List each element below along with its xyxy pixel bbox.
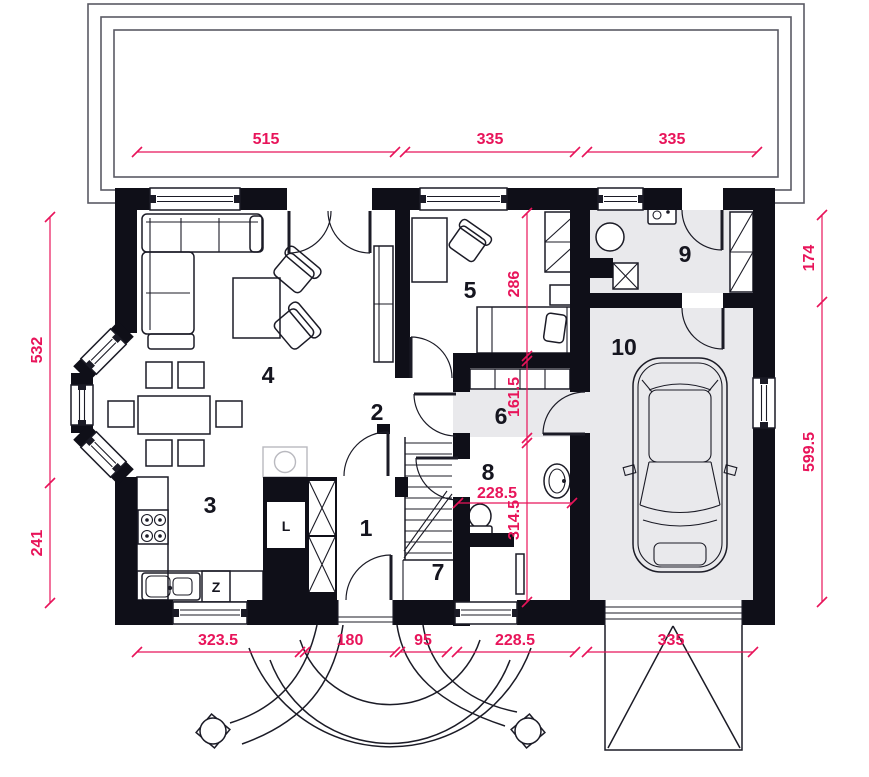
room-label-10: 10 <box>611 334 637 360</box>
window-kitchen <box>173 602 247 624</box>
room-label-3: 3 <box>204 492 217 518</box>
garage-door <box>605 600 742 625</box>
window-living <box>150 188 240 210</box>
entrance-column-left <box>196 714 230 748</box>
room-label-7: 7 <box>432 559 445 585</box>
dim-top-1: 515 <box>253 131 280 148</box>
window-room5 <box>420 188 507 210</box>
dim-int-h: 228.5 <box>477 485 517 502</box>
boiler-icon <box>596 223 624 251</box>
dim-left-1: 532 <box>29 337 46 364</box>
dishwasher-label: Z <box>212 579 221 595</box>
washing-machine-icon <box>263 447 307 477</box>
room-label-9: 9 <box>679 241 692 267</box>
toilet-icon <box>468 504 492 536</box>
dim-left-2: 241 <box>29 530 46 557</box>
utility-closet <box>730 212 753 292</box>
terrace <box>88 4 804 203</box>
window-utility <box>598 188 643 210</box>
entrance-steps <box>196 625 545 748</box>
window-bay-middle <box>71 385 93 425</box>
dim-bottom-5: 335 <box>658 632 685 649</box>
window-bathroom <box>455 602 517 624</box>
stove-icon <box>138 510 168 544</box>
vent-shaft-icon <box>613 263 638 289</box>
dim-bottom-3: 95 <box>414 632 432 649</box>
dim-int-1: 286 <box>506 271 523 298</box>
dim-bottom-4: 228.5 <box>495 632 535 649</box>
room-label-5: 5 <box>464 277 477 303</box>
entrance-column-right <box>511 714 545 748</box>
room-label-2: 2 <box>371 399 384 425</box>
dim-bottom-2: 180 <box>337 632 364 649</box>
dim-int-2: 161.5 <box>506 377 523 417</box>
room-label-4: 4 <box>262 362 275 388</box>
dim-int-3: 314.5 <box>506 500 523 540</box>
wall-4-5 <box>395 210 410 378</box>
dim-top-2: 335 <box>477 131 504 148</box>
dim-bottom-1: 323.5 <box>198 632 238 649</box>
window-garage <box>753 378 775 428</box>
dim-right-1: 174 <box>801 245 818 272</box>
dim-right-2: 599.5 <box>801 432 818 472</box>
floor-plan: L Z 1 2 3 4 5 6 7 8 9 10 515 335 335 532… <box>0 0 869 777</box>
room-label-1: 1 <box>360 515 373 541</box>
room-label-8: 8 <box>482 459 495 485</box>
fridge-label: L <box>282 518 291 534</box>
washbasin-icon <box>544 464 570 498</box>
dim-top-3: 335 <box>659 131 686 148</box>
